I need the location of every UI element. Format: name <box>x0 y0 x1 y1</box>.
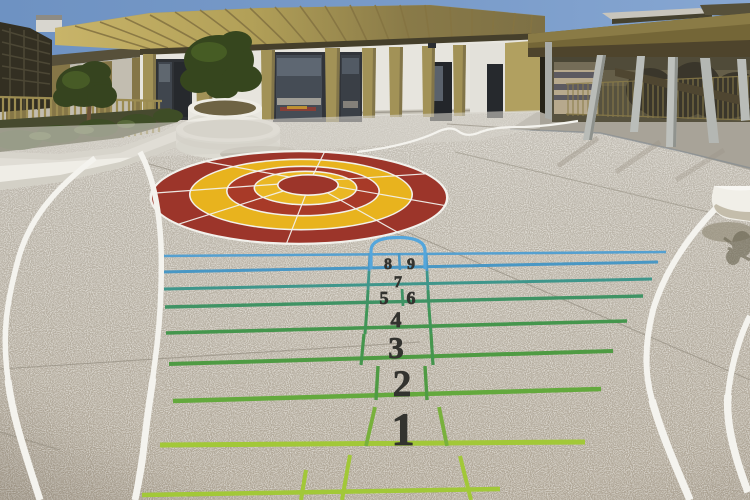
svg-text:5: 5 <box>380 288 389 308</box>
svg-text:6: 6 <box>407 288 416 308</box>
svg-text:8: 8 <box>384 256 392 273</box>
svg-text:3: 3 <box>388 330 404 365</box>
svg-text:2: 2 <box>393 364 412 405</box>
svg-text:1: 1 <box>391 404 415 456</box>
svg-text:9: 9 <box>407 256 415 273</box>
svg-text:7: 7 <box>394 274 402 291</box>
svg-text:4: 4 <box>391 307 402 332</box>
